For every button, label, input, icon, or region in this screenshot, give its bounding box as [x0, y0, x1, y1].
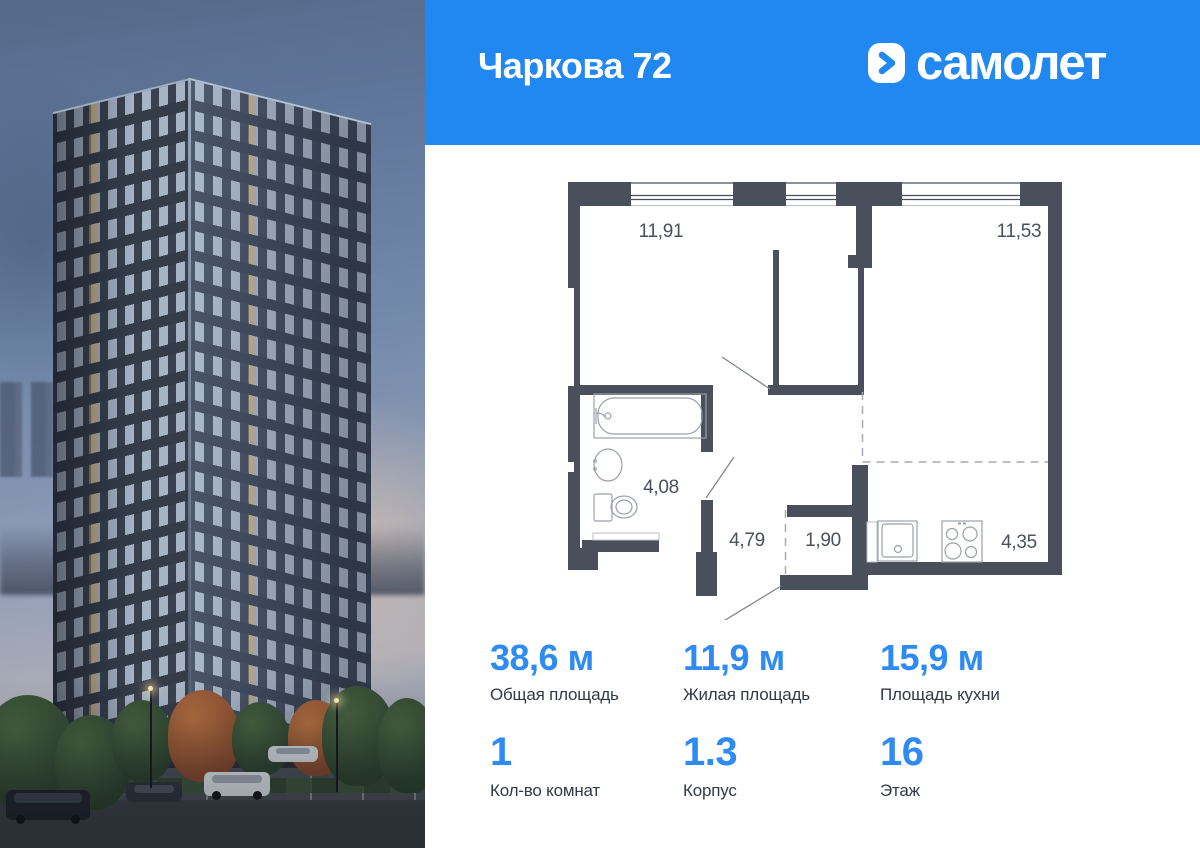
stat-kitchen-area: 15,9 м Площадь кухни [880, 640, 1000, 705]
stat-floor: 16 Этаж [880, 732, 924, 801]
car-sedan-dark [6, 790, 90, 820]
stat-rooms-count: 1 Кол-во комнат [490, 732, 600, 801]
car-suv-white [204, 772, 270, 796]
stat-living-area: 11,9 м Жилая площадь [683, 640, 810, 705]
stat-label: Корпус [683, 781, 737, 801]
floor-plan: 11,91 11,53 4,08 4,79 1,90 4,35 [555, 170, 1075, 620]
street-lamp [336, 700, 338, 792]
stat-value: 38,6 м [490, 640, 619, 676]
tree [378, 698, 425, 793]
tower-right-facade [190, 78, 371, 789]
kitchen-sink-icon [878, 521, 917, 561]
samolet-chevron-icon [868, 43, 905, 83]
brand-logo: самолет [868, 43, 1106, 83]
stat-label: Площадь кухни [880, 685, 1000, 705]
stat-value: 1 [490, 732, 600, 772]
toilet-icon [594, 494, 637, 521]
car-dark [126, 782, 182, 802]
windows-group [631, 183, 1020, 200]
tower-left-facade [53, 78, 190, 778]
stat-label: Этаж [880, 781, 924, 801]
room-area-label: 4,79 [729, 530, 765, 551]
stove-icon [942, 521, 982, 562]
bathtub-icon [594, 394, 706, 438]
stat-value: 15,9 м [880, 640, 1000, 676]
tree [112, 700, 174, 782]
brand-name: самолет [916, 43, 1106, 83]
stat-label: Кол-во комнат [490, 781, 600, 801]
stat-label: Жилая площадь [683, 685, 810, 705]
street-lamp [150, 688, 152, 788]
stat-value: 1.3 [683, 732, 737, 772]
stat-value: 11,9 м [683, 640, 810, 676]
kitchen-cabinet [867, 522, 877, 562]
stat-label: Общая площадь [490, 685, 619, 705]
room-area-label: 11,53 [997, 221, 1042, 242]
page-title: Чаркова 72 [478, 48, 672, 84]
bath-threshold [593, 533, 659, 540]
room-area-label: 11,91 [639, 221, 684, 242]
stat-value: 16 [880, 732, 924, 772]
room-area-label: 4,08 [643, 477, 679, 498]
building-photo [0, 0, 425, 848]
sink-icon [594, 449, 622, 481]
room-area-label: 1,90 [805, 530, 841, 551]
stat-total-area: 38,6 м Общая площадь [490, 640, 619, 705]
tower-corner-edge [188, 78, 191, 742]
room-area-label: 4,35 [1001, 532, 1037, 553]
listing-card: Чаркова 72 самолет [425, 0, 1200, 848]
door-swing-lines [706, 357, 781, 620]
tree [232, 702, 290, 776]
car-distant-white [268, 746, 318, 762]
header: Чаркова 72 самолет [425, 0, 1200, 145]
stat-building: 1.3 Корпус [683, 732, 737, 801]
autumn-tree [168, 690, 240, 782]
